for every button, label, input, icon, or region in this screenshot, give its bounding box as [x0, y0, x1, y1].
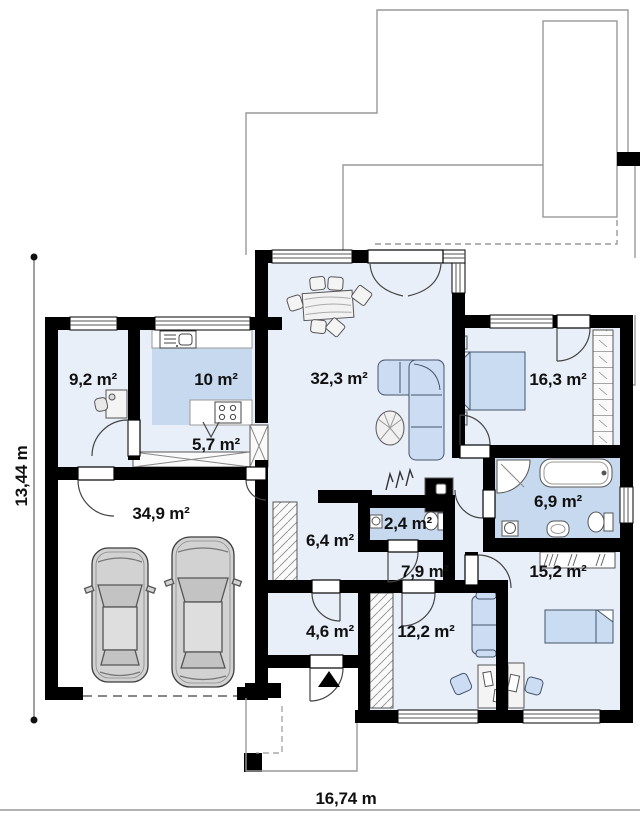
floor-plan-page: 9,2 m² 10 m² 32,3 m² 16,3 m² 5,7 m² 34,9…	[0, 0, 640, 824]
room-label-office: 12,2 m²	[397, 622, 454, 642]
room-label-bedroom-bottom: 15,2 m²	[529, 562, 586, 582]
window-bedroom-bottom	[523, 710, 600, 723]
window-living	[272, 250, 352, 263]
window-bathroom	[620, 487, 633, 523]
room-label-hall-6-4: 6,4 m²	[306, 531, 354, 551]
car-right	[165, 537, 242, 687]
room-label-wc: 2,4 m²	[384, 514, 432, 534]
room-label-bathroom: 6,9 m²	[534, 492, 582, 512]
dining-table	[302, 290, 354, 320]
room-label-bedroom-right: 16,3 m²	[529, 370, 586, 390]
room-label-9-2: 9,2 m²	[69, 370, 117, 390]
floor-plan-canvas	[0, 0, 640, 824]
round-rug	[376, 411, 404, 445]
room-label-hall-5-7: 5,7 m²	[192, 435, 240, 455]
kitchen-sink-icon	[160, 331, 196, 348]
room-label-vestibule: 4,6 m²	[306, 622, 354, 642]
car-left	[85, 548, 156, 682]
window-office	[398, 710, 478, 723]
dimension-label-height: 13,44 m	[12, 446, 32, 507]
window-room92	[70, 317, 117, 330]
room-label-corridor: 7,9 m²	[401, 562, 449, 582]
window-bedroom-right	[490, 315, 553, 328]
room-label-kitchen: 10 m²	[194, 370, 237, 390]
room-label-garage: 34,9 m²	[132, 504, 189, 524]
dimension-label-width: 16,74 m	[316, 789, 377, 809]
window-kitchen	[155, 317, 250, 330]
cooktop-icon	[215, 402, 241, 423]
room-label-living: 32,3 m²	[310, 369, 367, 389]
